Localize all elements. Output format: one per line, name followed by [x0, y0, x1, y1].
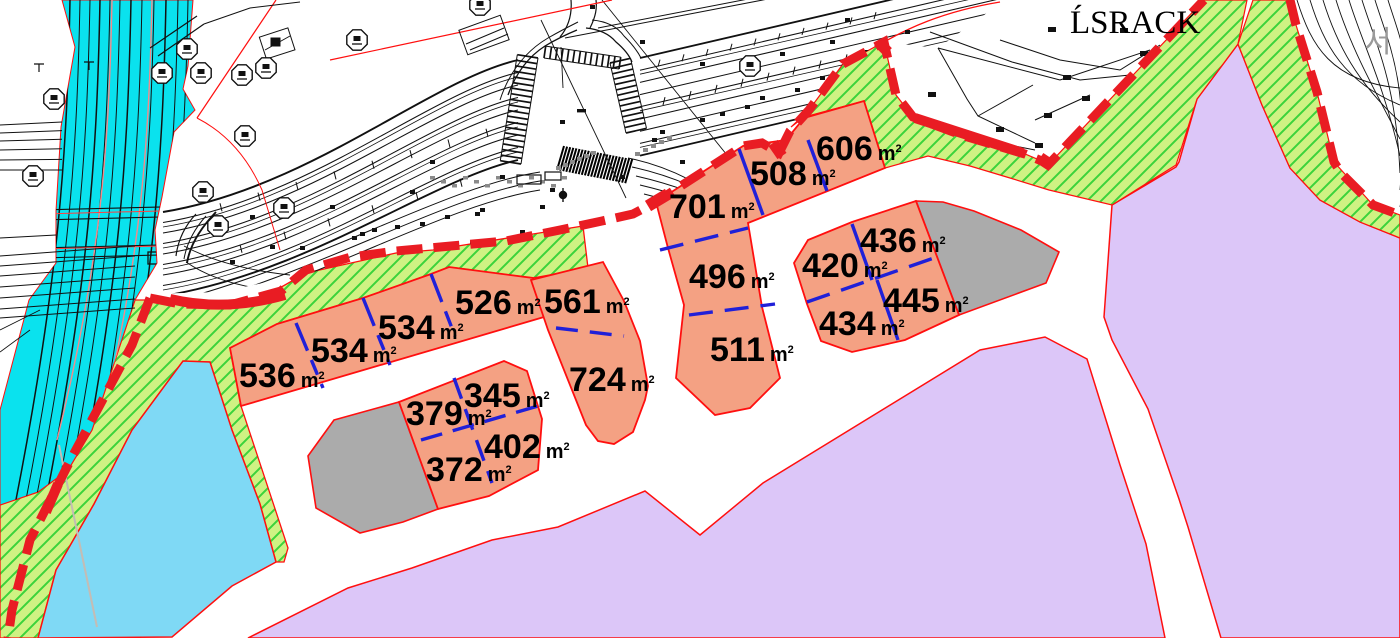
svg-text:서: 서: [1364, 26, 1392, 59]
svg-text:ĹSRACK: ĹSRACK: [1070, 4, 1200, 41]
